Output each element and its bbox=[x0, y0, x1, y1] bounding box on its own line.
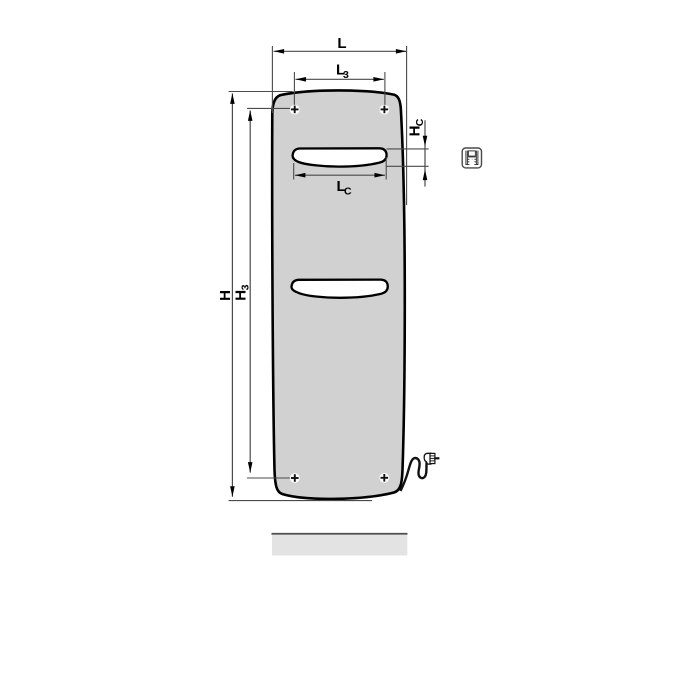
svg-text:C: C bbox=[344, 186, 352, 198]
svg-text:C: C bbox=[414, 118, 426, 126]
svg-text:L: L bbox=[337, 35, 346, 52]
svg-text:3: 3 bbox=[343, 69, 349, 81]
svg-text:H: H bbox=[232, 290, 249, 301]
svg-text:3: 3 bbox=[240, 284, 252, 290]
svg-text:H: H bbox=[407, 126, 424, 137]
